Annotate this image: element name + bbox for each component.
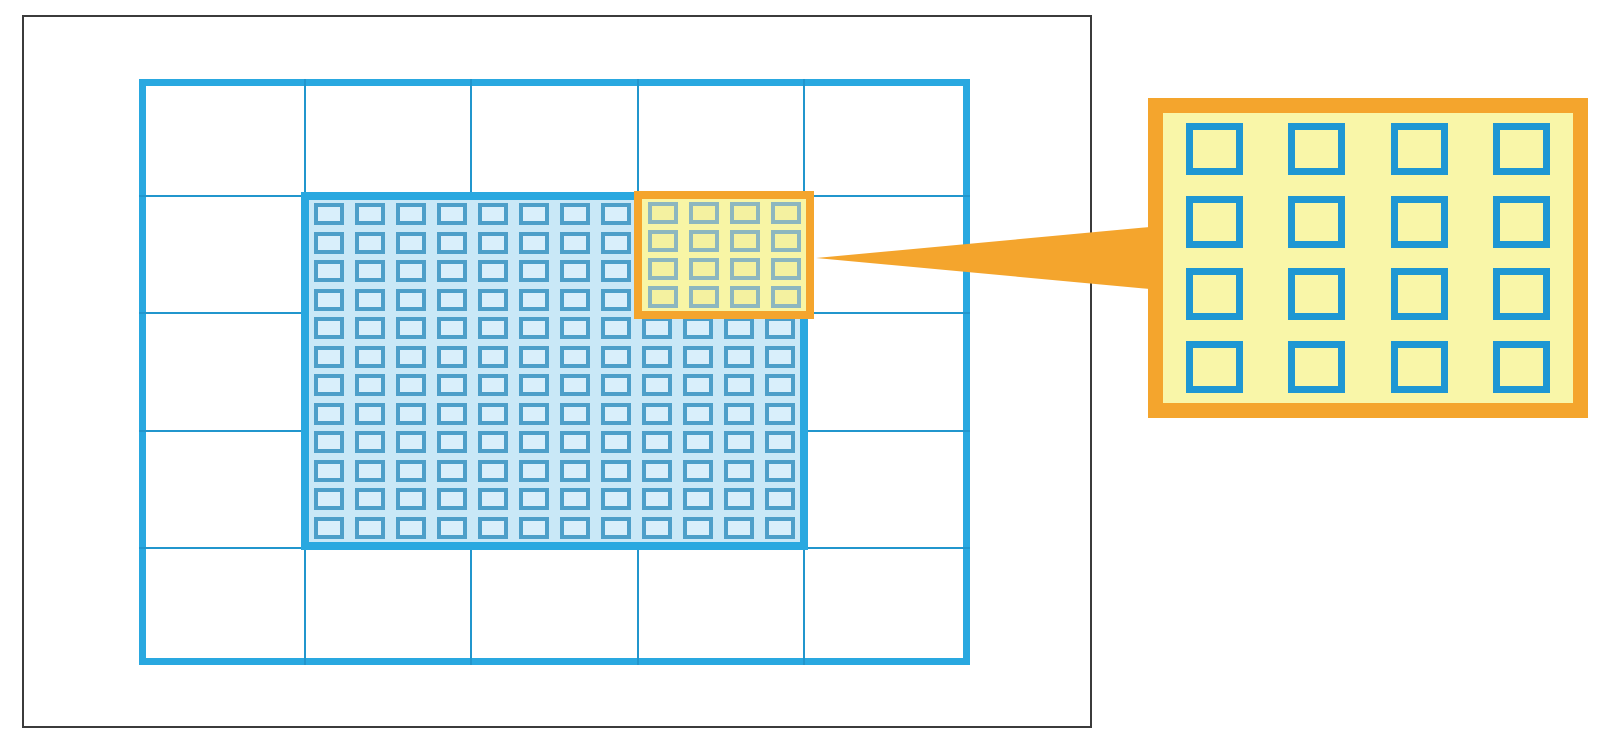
fine-grid-cell: [519, 431, 549, 453]
fine-grid-cell: [519, 260, 549, 282]
callout-cell: [1493, 341, 1550, 393]
callout-cell: [1186, 196, 1243, 248]
callout-cell: [1288, 268, 1345, 320]
callout-cell: [1186, 268, 1243, 320]
fine-grid-cell: [560, 517, 590, 539]
fine-grid-cell: [601, 232, 631, 254]
fine-grid-cell: [314, 517, 344, 539]
fine-grid-cell: [396, 203, 426, 225]
fine-grid-cell: [314, 374, 344, 396]
fine-grid-cell: [355, 488, 385, 510]
fine-grid-cell: [478, 460, 508, 482]
callout-cell: [1186, 123, 1243, 175]
fine-grid-cell: [560, 289, 590, 311]
highlight-cell: [730, 286, 760, 308]
fine-grid-cell: [478, 317, 508, 339]
fine-grid-cell: [683, 374, 713, 396]
callout-cell: [1391, 341, 1448, 393]
fine-grid-cell: [765, 460, 795, 482]
fine-grid-cell: [478, 289, 508, 311]
callout-cell: [1288, 196, 1345, 248]
fine-grid-cell: [355, 374, 385, 396]
fine-grid-cell: [355, 460, 385, 482]
fine-grid-cell: [724, 488, 754, 510]
fine-grid-cell: [396, 317, 426, 339]
highlight-cell: [771, 202, 801, 224]
fine-grid-cell: [478, 260, 508, 282]
fine-grid-cell: [478, 517, 508, 539]
fine-grid-cell: [601, 346, 631, 368]
highlight-cell: [648, 258, 678, 280]
fine-grid-cell: [724, 317, 754, 339]
callout-cell: [1288, 123, 1345, 175]
callout-cell: [1391, 196, 1448, 248]
fine-grid-cell: [601, 431, 631, 453]
fine-grid-cell: [519, 460, 549, 482]
fine-grid-cell: [683, 317, 713, 339]
callout-cell: [1493, 268, 1550, 320]
highlight-cell: [730, 258, 760, 280]
fine-grid-cell: [724, 460, 754, 482]
fine-grid-cell: [560, 232, 590, 254]
diagram-canvas: [0, 0, 1600, 750]
fine-grid-cell: [765, 431, 795, 453]
fine-grid-cell: [355, 232, 385, 254]
highlight-cell: [771, 230, 801, 252]
fine-grid-cell: [560, 488, 590, 510]
fine-grid-cell: [560, 374, 590, 396]
fine-grid-cell: [519, 517, 549, 539]
fine-grid-cell: [642, 346, 672, 368]
fine-grid-cell: [355, 203, 385, 225]
fine-grid-cell: [601, 460, 631, 482]
highlight-cell: [771, 286, 801, 308]
callout-cell: [1186, 341, 1243, 393]
fine-grid-cell: [642, 460, 672, 482]
fine-grid-cell: [601, 260, 631, 282]
fine-grid-cell: [642, 374, 672, 396]
highlight-cell: [689, 286, 719, 308]
fine-grid-cell: [560, 203, 590, 225]
fine-grid-cell: [601, 317, 631, 339]
fine-grid-cell: [560, 260, 590, 282]
fine-grid-cell: [437, 374, 467, 396]
fine-grid-cell: [314, 317, 344, 339]
fine-grid-cell: [724, 517, 754, 539]
fine-grid-cell: [437, 289, 467, 311]
fine-grid-cell: [560, 346, 590, 368]
fine-grid-cell: [314, 260, 344, 282]
fine-grid-cell: [519, 289, 549, 311]
fine-grid-cell: [478, 346, 508, 368]
fine-grid-cell: [314, 460, 344, 482]
fine-grid-cell: [396, 346, 426, 368]
fine-grid-cell: [314, 232, 344, 254]
fine-grid-cell: [314, 488, 344, 510]
fine-grid-cell: [724, 403, 754, 425]
highlight-cell: [648, 230, 678, 252]
fine-grid-cell: [396, 374, 426, 396]
fine-grid-cell: [519, 374, 549, 396]
fine-grid-cell: [519, 403, 549, 425]
highlighted-block: [634, 191, 814, 319]
fine-grid-cell: [355, 403, 385, 425]
fine-grid-cell: [765, 317, 795, 339]
callout-cell: [1493, 196, 1550, 248]
fine-grid-cell: [355, 517, 385, 539]
fine-grid-cell: [601, 488, 631, 510]
fine-grid-cell: [437, 488, 467, 510]
fine-grid-cell: [683, 488, 713, 510]
fine-grid-cell: [683, 346, 713, 368]
fine-grid-cell: [642, 403, 672, 425]
fine-grid-cell: [560, 317, 590, 339]
fine-grid-cell: [519, 317, 549, 339]
fine-grid-cell: [560, 431, 590, 453]
fine-grid-cell: [683, 517, 713, 539]
fine-grid-cell: [683, 403, 713, 425]
highlight-cell: [730, 202, 760, 224]
fine-grid-cell: [724, 431, 754, 453]
fine-grid-cell: [437, 403, 467, 425]
fine-grid-cell: [314, 403, 344, 425]
highlight-cell: [730, 230, 760, 252]
fine-grid-cell: [437, 260, 467, 282]
fine-grid-cell: [560, 403, 590, 425]
fine-grid-cell: [765, 403, 795, 425]
fine-grid-cell: [437, 460, 467, 482]
fine-grid-cell: [396, 403, 426, 425]
highlight-grid: [642, 199, 806, 311]
fine-grid-cell: [519, 232, 549, 254]
fine-grid-cell: [437, 431, 467, 453]
highlight-cell: [648, 202, 678, 224]
fine-grid-cell: [765, 346, 795, 368]
fine-grid-cell: [519, 488, 549, 510]
fine-grid-cell: [355, 346, 385, 368]
fine-grid-cell: [396, 289, 426, 311]
fine-grid-cell: [478, 374, 508, 396]
fine-grid-cell: [519, 203, 549, 225]
fine-grid-cell: [396, 260, 426, 282]
callout-cell: [1391, 268, 1448, 320]
highlight-cell: [689, 258, 719, 280]
fine-grid-cell: [355, 260, 385, 282]
fine-grid-cell: [437, 232, 467, 254]
fine-grid-cell: [601, 289, 631, 311]
fine-grid-cell: [560, 460, 590, 482]
fine-grid-cell: [765, 374, 795, 396]
callout-grid: [1163, 113, 1573, 403]
fine-grid-cell: [437, 317, 467, 339]
fine-grid-cell: [314, 289, 344, 311]
fine-grid-cell: [601, 517, 631, 539]
fine-grid-cell: [314, 203, 344, 225]
fine-grid-cell: [724, 346, 754, 368]
fine-grid-cell: [437, 517, 467, 539]
highlight-cell: [689, 202, 719, 224]
fine-grid-cell: [642, 317, 672, 339]
fine-grid-cell: [396, 232, 426, 254]
fine-grid-cell: [642, 431, 672, 453]
zoom-callout-panel: [1148, 98, 1588, 418]
callout-cell: [1288, 341, 1345, 393]
fine-grid-cell: [396, 460, 426, 482]
fine-grid-cell: [314, 346, 344, 368]
fine-grid-cell: [396, 431, 426, 453]
fine-grid-cell: [642, 517, 672, 539]
fine-grid-cell: [396, 517, 426, 539]
highlight-cell: [648, 286, 678, 308]
fine-grid-cell: [437, 203, 467, 225]
fine-grid-cell: [396, 488, 426, 510]
fine-grid-cell: [765, 517, 795, 539]
fine-grid-cell: [601, 403, 631, 425]
fine-grid-cell: [478, 232, 508, 254]
fine-grid-cell: [683, 431, 713, 453]
fine-grid-cell: [478, 431, 508, 453]
fine-grid-cell: [683, 460, 713, 482]
callout-cell: [1493, 123, 1550, 175]
fine-grid-cell: [724, 374, 754, 396]
highlight-cell: [771, 258, 801, 280]
fine-grid-cell: [642, 488, 672, 510]
fine-grid-cell: [601, 374, 631, 396]
fine-grid-cell: [355, 289, 385, 311]
fine-grid-cell: [519, 346, 549, 368]
fine-grid-cell: [478, 403, 508, 425]
fine-grid-cell: [601, 203, 631, 225]
highlight-cell: [689, 230, 719, 252]
callout-cell: [1391, 123, 1448, 175]
fine-grid-cell: [765, 488, 795, 510]
fine-grid-cell: [314, 431, 344, 453]
fine-grid-cell: [355, 431, 385, 453]
fine-grid-cell: [437, 346, 467, 368]
fine-grid-cell: [478, 488, 508, 510]
fine-grid-cell: [355, 317, 385, 339]
fine-grid-cell: [478, 203, 508, 225]
